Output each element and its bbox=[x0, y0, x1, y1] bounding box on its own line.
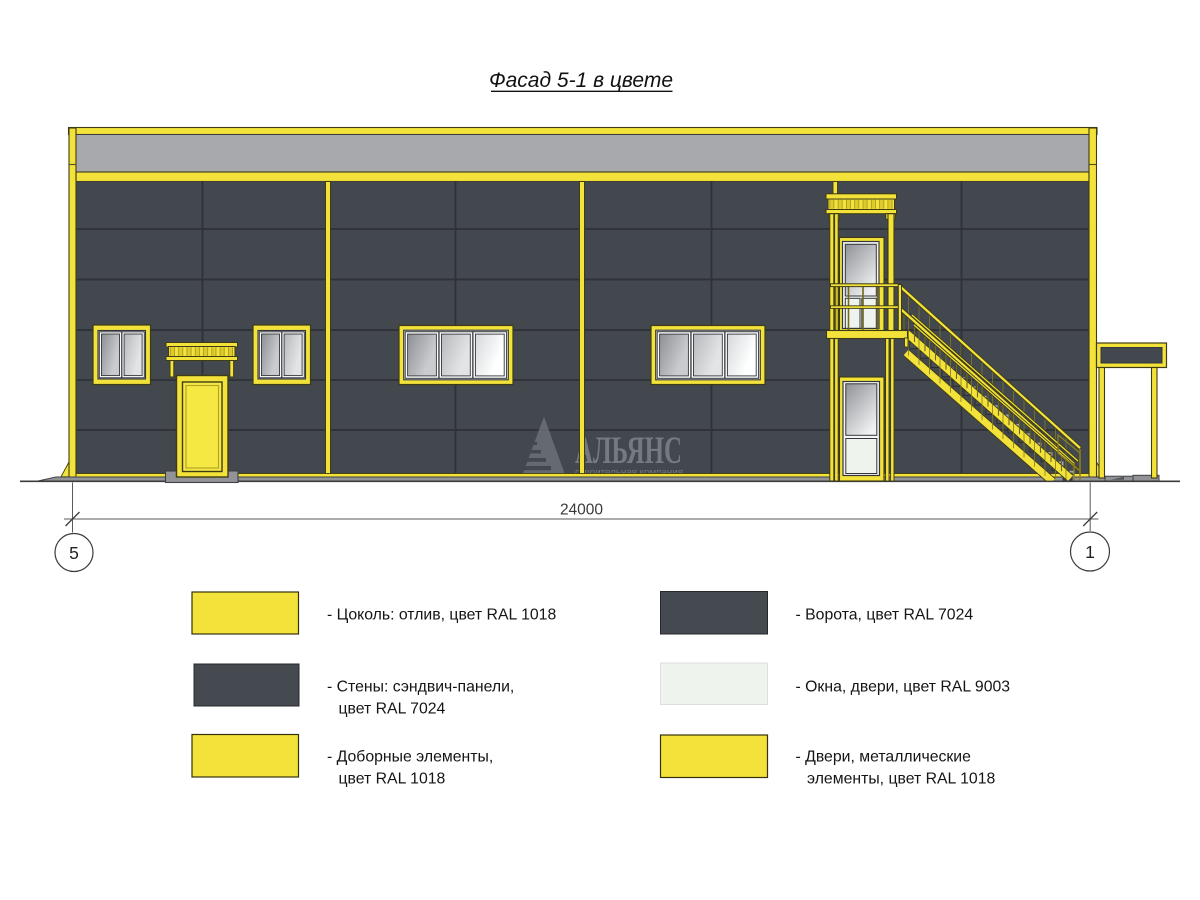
svg-text:цвет RAL 1018: цвет RAL 1018 bbox=[339, 771, 446, 788]
svg-text:- Доборные элементы,: - Доборные элементы, bbox=[327, 749, 493, 766]
svg-text:- Стены: сэндвич-панели,: - Стены: сэндвич-панели, bbox=[327, 679, 514, 696]
svg-text:- Цоколь: отлив, цвет RAL 1018: - Цоколь: отлив, цвет RAL 1018 bbox=[327, 607, 556, 624]
svg-text:цвет RAL 7024: цвет RAL 7024 bbox=[339, 701, 446, 718]
svg-text:24000: 24000 bbox=[560, 502, 603, 519]
svg-text:элементы, цвет RAL 1018: элементы, цвет RAL 1018 bbox=[807, 771, 995, 788]
svg-text:- Окна, двери, цвет RAL 9003: - Окна, двери, цвет RAL 9003 bbox=[796, 679, 1011, 696]
svg-text:Фасад 5-1 в цвете: Фасад 5-1 в цвете bbox=[489, 69, 673, 92]
svg-text:- Ворота, цвет RAL 7024: - Ворота, цвет RAL 7024 bbox=[796, 607, 974, 624]
svg-text:АЛЬЯНС: АЛЬЯНС bbox=[575, 429, 682, 472]
svg-text:- Двери, металлические: - Двери, металлические bbox=[796, 749, 972, 766]
svg-text:1: 1 bbox=[1085, 542, 1095, 562]
svg-text:5: 5 bbox=[69, 543, 79, 563]
